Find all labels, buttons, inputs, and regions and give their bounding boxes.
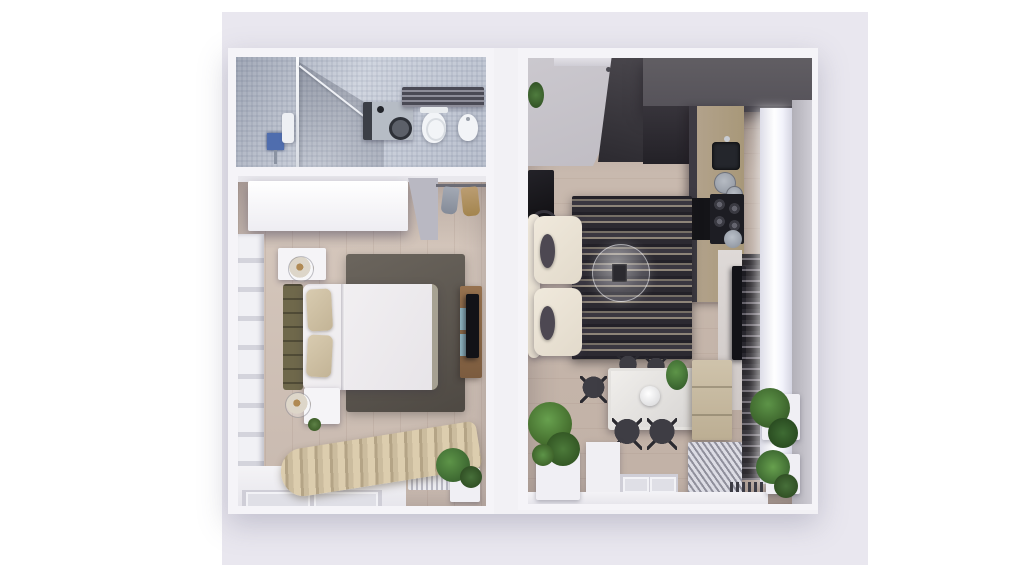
right-wall <box>792 100 812 504</box>
dining-chair <box>580 376 607 403</box>
entry-plant <box>528 82 544 108</box>
unit-living-kitchen <box>518 48 818 510</box>
sideboard <box>692 360 732 440</box>
room-bedroom <box>238 176 486 506</box>
living-plant-left-leaf <box>532 444 554 466</box>
kitchen-tall-unit <box>643 106 689 164</box>
kitchen-upper-cabinets <box>643 58 812 112</box>
burner-icon <box>729 203 740 214</box>
living-plant-right-leaf <box>768 418 798 448</box>
dining-chair <box>647 418 677 450</box>
window-pane <box>314 492 378 506</box>
built-in-oven <box>690 198 710 240</box>
bath-wall-shelf <box>282 113 294 143</box>
coffee-table-tray <box>612 264 627 282</box>
window-pane <box>650 477 676 493</box>
bed-foot-trim <box>432 284 438 390</box>
shower-pipe <box>274 150 277 164</box>
room-living-kitchen <box>528 58 812 504</box>
nightstand-lamp-top <box>288 256 314 282</box>
towel-radiator <box>402 87 484 107</box>
living-plant-right-leaf <box>774 474 798 498</box>
burner-icon <box>714 199 725 210</box>
washer-knob <box>377 106 384 113</box>
washer-door-ring <box>389 117 412 140</box>
living-window-frame <box>620 474 678 492</box>
nightstand-plant <box>308 418 321 431</box>
kettle <box>724 230 742 248</box>
hanging-garment-gray <box>440 186 459 215</box>
bidet-faucet <box>466 117 470 121</box>
dining-plant <box>666 360 688 390</box>
sofa-pillow-top <box>540 234 555 268</box>
sink-faucet-icon <box>724 136 730 142</box>
washing-machine <box>363 102 413 140</box>
wardrobe-side-panel <box>408 178 438 240</box>
burner-icon <box>714 216 725 227</box>
fruit-bowl <box>640 386 660 406</box>
sofa-pillow-bottom <box>540 306 555 340</box>
sideboard-divider <box>692 386 732 388</box>
bedroom-plant-leaf <box>460 466 482 488</box>
kitchen-sink <box>712 142 740 170</box>
window-pane <box>623 477 649 493</box>
bidet <box>458 114 478 141</box>
bed-headboard <box>283 284 303 390</box>
bed-pillow-top <box>306 288 333 331</box>
bedroom-tv <box>466 294 479 358</box>
bed-pillow-bottom <box>306 334 333 377</box>
room-bathroom <box>236 57 486 167</box>
nightstand-lamp-bottom <box>285 392 311 418</box>
shower-glass-panel <box>296 57 299 167</box>
shelf-column <box>742 254 760 480</box>
toilet-tank <box>420 107 448 113</box>
unit-bedroom-bath <box>228 48 494 514</box>
sideboard-divider <box>692 414 732 416</box>
render-canvas <box>0 0 1024 576</box>
toilet-seat-line <box>426 118 446 141</box>
padded-wall-panels <box>238 234 264 478</box>
toilet <box>422 112 446 143</box>
hanging-garment-tan <box>461 186 481 217</box>
duvet-fold <box>341 284 345 390</box>
bedroom-wardrobe <box>248 181 408 231</box>
entry-door <box>554 58 614 66</box>
